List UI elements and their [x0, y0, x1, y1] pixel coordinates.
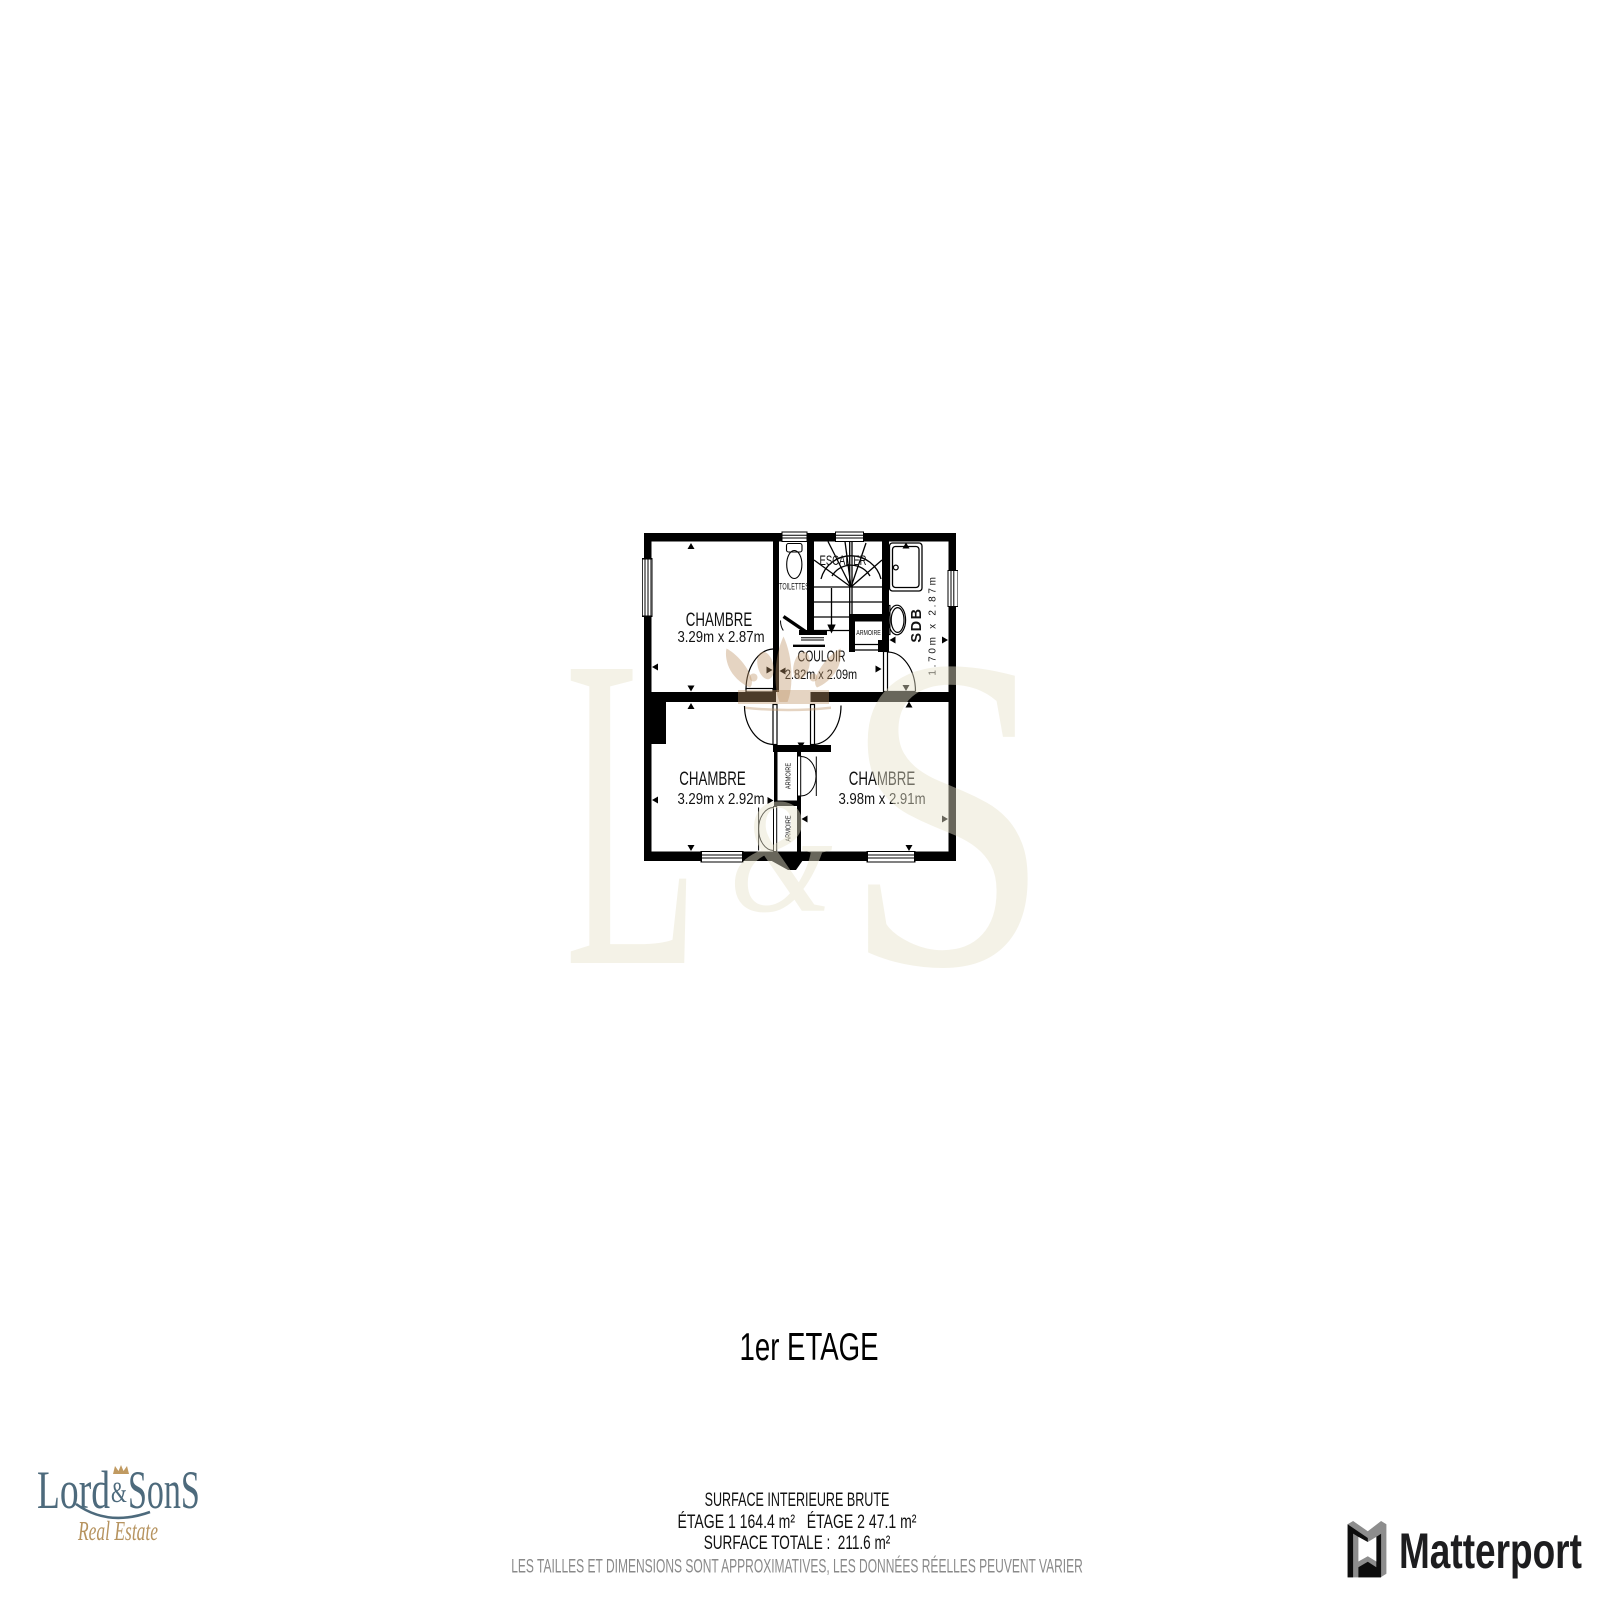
svg-text:ÉTAGE 1 164.4 m² ÉTAGE 2 47.: ÉTAGE 1 164.4 m² ÉTAGE 2 47.1 m²: [678, 1511, 917, 1533]
svg-text:Matterport: Matterport: [1399, 1524, 1582, 1580]
svg-text:Lord: Lord: [37, 1462, 110, 1521]
svg-text:&: &: [729, 766, 832, 948]
svg-text:SonS: SonS: [128, 1460, 200, 1520]
svg-text:SURFACE TOTALE : 211.6 m²: SURFACE TOTALE : 211.6 m²: [704, 1532, 891, 1554]
svg-text:S: S: [843, 565, 1051, 1061]
svg-text:L: L: [564, 563, 699, 1060]
svg-text:1er ETAGE: 1er ETAGE: [740, 1325, 879, 1369]
svg-text:Real Estate: Real Estate: [77, 1516, 158, 1546]
svg-text:TOILETTES: TOILETTES: [779, 581, 809, 592]
svg-text:SURFACE INTERIEURE BRUTE: SURFACE INTERIEURE BRUTE: [705, 1489, 890, 1510]
svg-text:LES TAILLES ET DIMENSIONS SONT: LES TAILLES ET DIMENSIONS SONT APPROXIMA…: [511, 1554, 1083, 1577]
svg-text:&: &: [111, 1475, 127, 1509]
